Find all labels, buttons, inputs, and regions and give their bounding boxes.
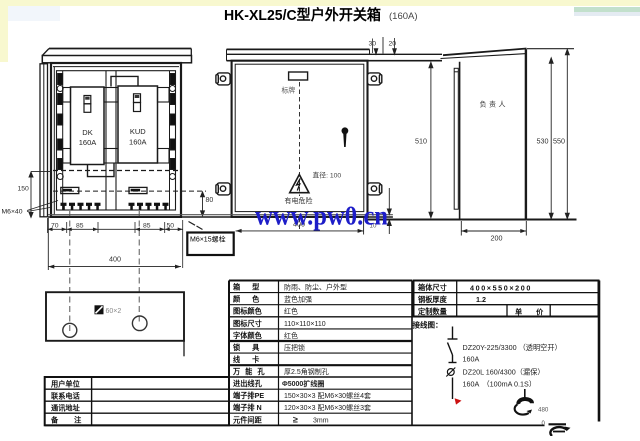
svg-text:160A （100mA 0.1S）: 160A （100mA 0.1S） xyxy=(463,380,537,389)
svg-text:85: 85 xyxy=(76,223,84,230)
svg-text:联系电话: 联系电话 xyxy=(51,391,81,400)
svg-text:150: 150 xyxy=(18,186,30,193)
svg-text:蓝色加强: 蓝色加强 xyxy=(284,295,312,304)
svg-text:M6×15螺栓: M6×15螺栓 xyxy=(190,235,226,244)
svg-text:480: 480 xyxy=(538,407,549,414)
svg-text:160A: 160A xyxy=(79,138,97,147)
svg-text:DK: DK xyxy=(82,128,92,137)
svg-text:M6×40: M6×40 xyxy=(2,209,23,216)
svg-text:颜 色: 颜 色 xyxy=(233,295,264,304)
svg-text:510: 510 xyxy=(415,137,427,146)
svg-text:万 能 孔: 万 能 孔 xyxy=(232,367,266,376)
svg-text:红色: 红色 xyxy=(284,307,298,316)
svg-text:压把锁: 压把锁 xyxy=(284,343,305,352)
svg-text:防雨、防尘、户外型: 防雨、防尘、户外型 xyxy=(284,283,347,292)
svg-text:80: 80 xyxy=(206,197,214,204)
svg-text:1.2: 1.2 xyxy=(476,295,486,304)
svg-text:元件间距: 元件间距 xyxy=(233,415,263,424)
svg-text:Φ5000扩线圈: Φ5000扩线圈 xyxy=(282,379,324,388)
svg-text:端子排PE: 端子排PE xyxy=(233,391,264,400)
svg-text:3mm: 3mm xyxy=(313,417,329,424)
svg-text:红色: 红色 xyxy=(284,331,298,340)
svg-text:530: 530 xyxy=(537,137,549,146)
svg-text:400×550×200: 400×550×200 xyxy=(470,283,532,292)
svg-text:定制数量: 定制数量 xyxy=(417,307,448,316)
svg-text:直径: 100: 直径: 100 xyxy=(313,171,342,180)
svg-text:200: 200 xyxy=(491,234,503,243)
svg-text:160A: 160A xyxy=(463,355,480,364)
svg-text:通讯地址: 通讯地址 xyxy=(51,403,81,412)
svg-text:箱 型: 箱 型 xyxy=(233,283,264,292)
svg-text:箱体尺寸: 箱体尺寸 xyxy=(418,283,447,292)
svg-text:图标颜色: 图标颜色 xyxy=(233,307,263,316)
svg-text:钢板厚度: 钢板厚度 xyxy=(417,295,448,304)
svg-text:备 注: 备 注 xyxy=(50,415,88,424)
svg-text:用户单位: 用户单位 xyxy=(50,379,81,388)
svg-text:DZ20L 160/4300（漏保）: DZ20L 160/4300（漏保） xyxy=(463,368,545,377)
svg-text:www.pw0.cn: www.pw0.cn xyxy=(255,201,388,231)
svg-text:进出线孔: 进出线孔 xyxy=(233,379,263,388)
svg-text:线 卡: 线 卡 xyxy=(233,355,264,364)
svg-text:标牌: 标牌 xyxy=(282,86,296,95)
svg-text:85: 85 xyxy=(143,223,151,230)
svg-text:(160A): (160A) xyxy=(389,11,418,22)
svg-text:60×2: 60×2 xyxy=(106,308,122,315)
svg-text:50: 50 xyxy=(167,223,175,230)
svg-text:KUD: KUD xyxy=(130,127,146,136)
svg-text:锁 具: 锁 具 xyxy=(232,343,264,352)
svg-text:负责人: 负责人 xyxy=(480,100,509,109)
svg-text:70: 70 xyxy=(51,223,59,230)
svg-text:≥: ≥ xyxy=(293,414,298,424)
svg-text:单 价: 单 价 xyxy=(515,307,549,316)
svg-text:110×110×110: 110×110×110 xyxy=(284,321,326,328)
svg-text:图标尺寸: 图标尺寸 xyxy=(233,319,262,328)
svg-text:HK-XL25/C型户外开关箱: HK-XL25/C型户外开关箱 xyxy=(224,6,381,24)
svg-text:160A: 160A xyxy=(129,138,147,147)
svg-text:400: 400 xyxy=(109,255,121,264)
svg-text:550: 550 xyxy=(553,137,565,146)
svg-text:厚2.5角钢制孔: 厚2.5角钢制孔 xyxy=(284,367,329,376)
svg-text:字体颜色: 字体颜色 xyxy=(233,331,263,340)
svg-text:接线图：: 接线图： xyxy=(413,320,443,330)
svg-text:DZ20Y-225/3300 （透明空开）: DZ20Y-225/3300 （透明空开） xyxy=(463,343,562,352)
svg-text:端子排 N: 端子排 N xyxy=(233,403,262,412)
svg-text:120×30×3 配M6×30螺丝3套: 120×30×3 配M6×30螺丝3套 xyxy=(284,403,371,412)
svg-text:150×30×3 配M6×30螺丝4套: 150×30×3 配M6×30螺丝4套 xyxy=(284,391,371,400)
svg-text:20: 20 xyxy=(389,40,397,47)
